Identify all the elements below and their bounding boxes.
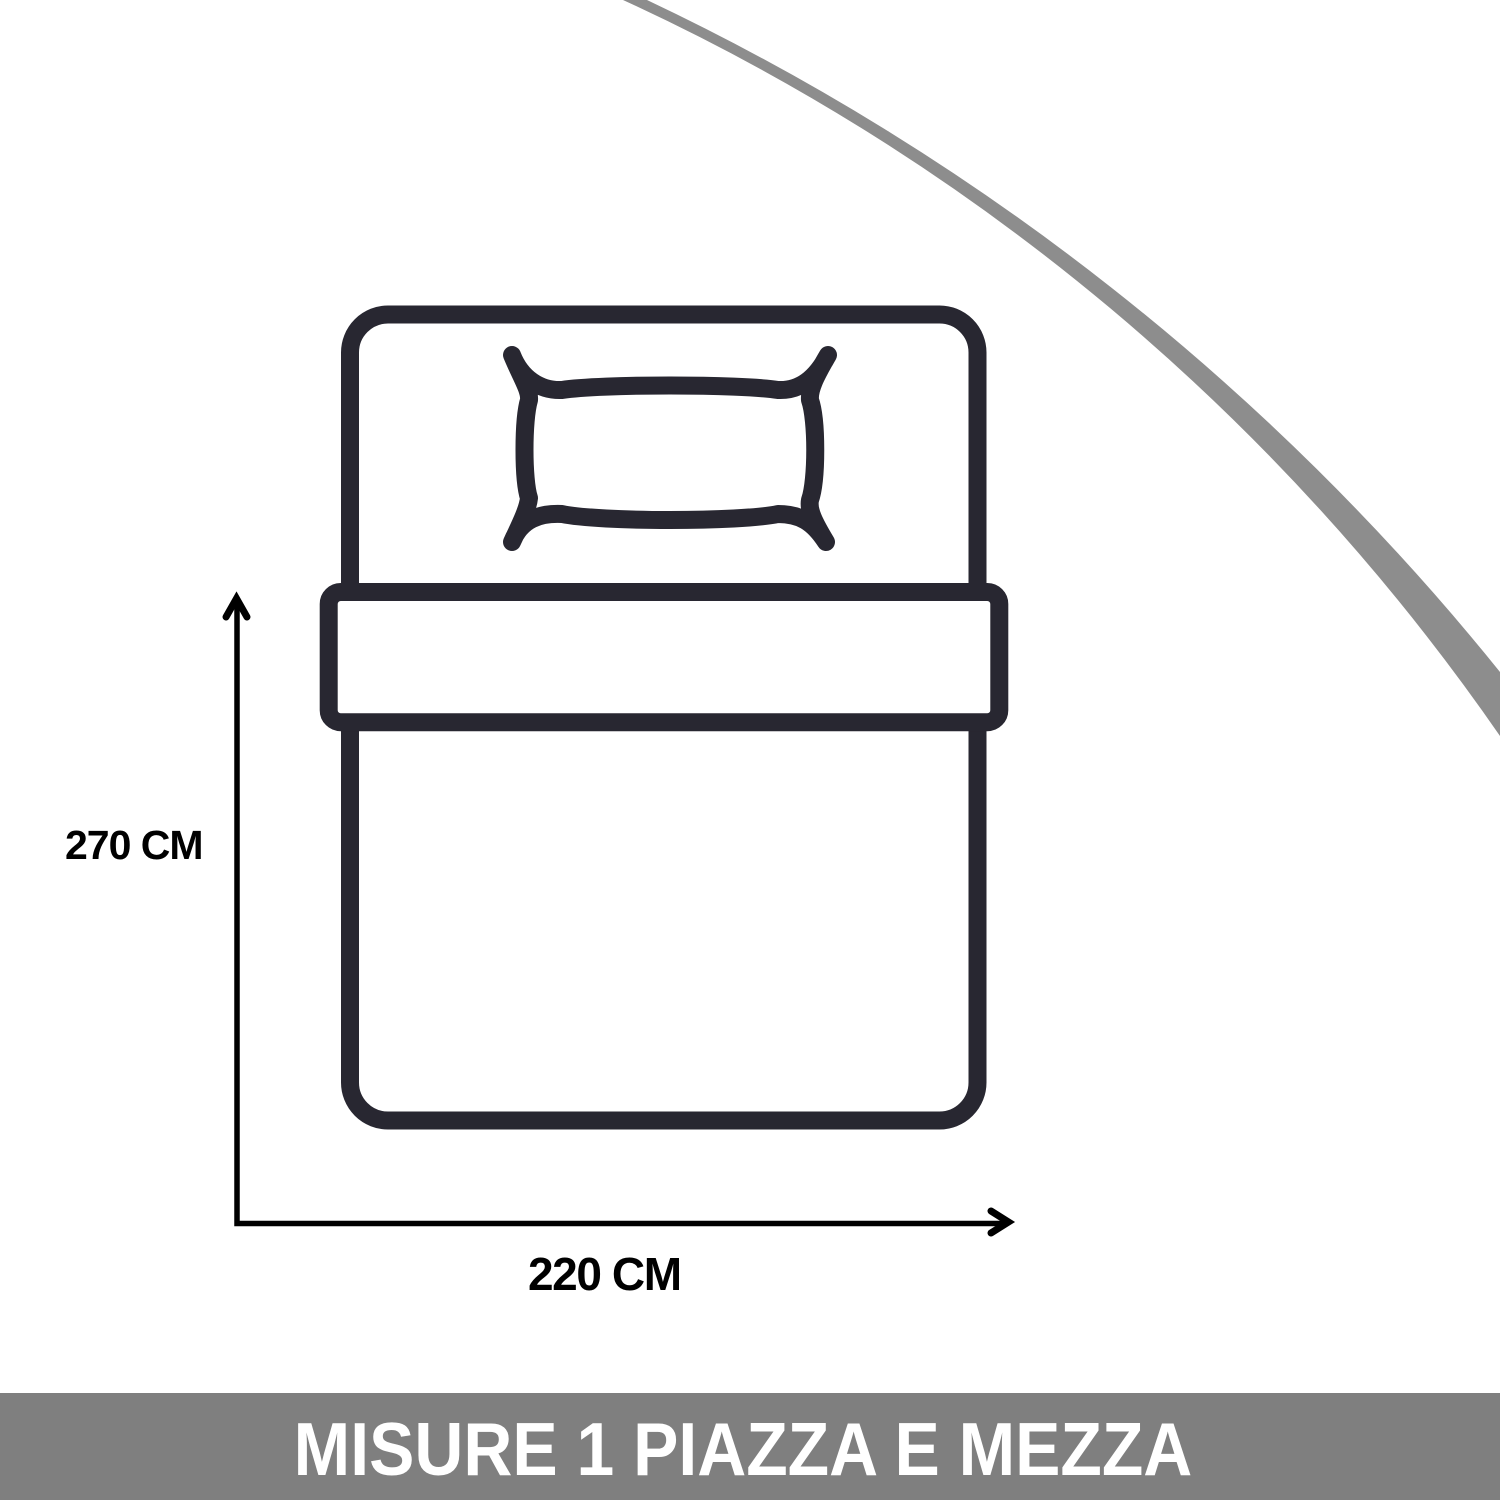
svg-text:220 CM: 220 CM [528,1248,681,1300]
svg-text:270 CM: 270 CM [65,822,203,868]
svg-text:MISURE 1 PIAZZA E MEZZA: MISURE 1 PIAZZA E MEZZA [294,1408,1193,1492]
